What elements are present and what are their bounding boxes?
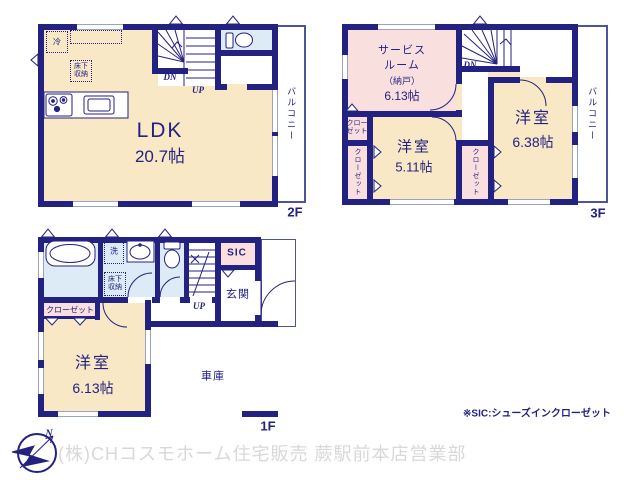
label-room-a-size: 5.11帖 xyxy=(395,161,432,176)
window xyxy=(378,24,435,30)
label-dn-3f: DN xyxy=(464,60,477,70)
wall xyxy=(342,111,462,117)
wall xyxy=(221,265,255,270)
wall xyxy=(255,237,261,281)
hall-2f xyxy=(221,56,272,84)
wall xyxy=(456,140,462,205)
wall xyxy=(152,24,158,74)
window xyxy=(390,199,454,205)
label-fridge: 冷 xyxy=(53,37,61,46)
pantry-space xyxy=(70,30,122,44)
label-sic: SIC xyxy=(227,247,247,259)
label-service2: ルーム xyxy=(384,60,420,73)
wall xyxy=(155,237,160,300)
wall xyxy=(215,84,227,90)
label-garage: 車庫 xyxy=(201,371,225,384)
window xyxy=(272,136,278,176)
label-underfloor-1f: 床下収納 xyxy=(107,276,123,292)
label-dn-2f: DN xyxy=(164,72,177,82)
wall xyxy=(456,111,462,117)
label-up-2f: UP xyxy=(192,85,204,95)
label-floor2: 2F xyxy=(287,206,302,221)
window xyxy=(272,90,278,132)
label-floor1: 1F xyxy=(260,420,275,435)
window xyxy=(38,252,44,278)
label-service-size: 6.13帖 xyxy=(384,90,419,104)
window xyxy=(192,201,240,207)
label-service1: サービス xyxy=(378,45,426,58)
stairwell-3f xyxy=(462,30,572,66)
window xyxy=(342,55,348,79)
label-closet-c: クローゼット xyxy=(471,148,479,196)
label-balcony-2f: バルコニー xyxy=(286,87,296,142)
window xyxy=(38,368,44,394)
label-underfloor-2f: 床下収納 xyxy=(73,63,89,79)
wall xyxy=(215,237,221,327)
wall xyxy=(546,77,578,83)
wall xyxy=(488,77,494,199)
label-balcony-3f: バルコニー xyxy=(587,87,597,142)
wall xyxy=(38,237,261,243)
wall xyxy=(215,24,221,90)
label-room-a: 洋室 xyxy=(397,138,431,155)
stairs-1f-icon xyxy=(189,250,215,296)
window xyxy=(572,145,578,178)
compass-n-label: N xyxy=(45,428,52,440)
label-room-b: 洋室 xyxy=(515,110,551,128)
wall xyxy=(494,77,520,83)
sic-note: ※SIC:シューズインクローゼット xyxy=(463,408,611,420)
floorplan-canvas: LDK 20.7帖 冷 床下収納 DN UP バルコニー 2F xyxy=(0,0,640,480)
wall xyxy=(247,84,272,90)
label-floor3: 3F xyxy=(590,207,605,222)
wall xyxy=(184,237,189,300)
label-room-1f-size: 6.13帖 xyxy=(72,380,113,396)
label-ldk-size: 20.7帖 xyxy=(135,147,185,167)
label-service3: （納戸） xyxy=(384,76,420,86)
window xyxy=(73,201,118,207)
watermark: (株)CHコスモホーム住宅販売 蕨駅前本店営業部 xyxy=(58,440,466,466)
toilet-room-2f xyxy=(221,30,272,50)
window xyxy=(58,411,98,417)
label-up-1f: UP xyxy=(193,301,205,311)
wall xyxy=(242,411,278,417)
label-closet-b: クローゼット xyxy=(353,148,361,196)
wall xyxy=(255,315,261,327)
window xyxy=(38,332,44,360)
wall xyxy=(456,24,462,84)
wall xyxy=(456,140,494,146)
label-washer: 洗 xyxy=(110,246,118,255)
label-room-1f: 洋室 xyxy=(75,355,111,373)
label-closet-1f: クローゼット xyxy=(46,305,94,314)
label-room-b-size: 6.38帖 xyxy=(512,134,553,150)
wall xyxy=(44,316,97,319)
wall xyxy=(215,50,272,56)
porch-1f xyxy=(261,239,296,327)
window xyxy=(145,330,151,364)
corridor-3f xyxy=(462,72,488,140)
label-closet-a: クローゼット xyxy=(346,120,368,136)
label-ldk: LDK xyxy=(137,119,184,143)
door-gap xyxy=(160,297,180,303)
window xyxy=(508,199,550,205)
toilet-room-1f xyxy=(160,243,184,297)
window xyxy=(572,106,578,132)
wall xyxy=(38,24,44,207)
bathroom-1f xyxy=(44,243,98,297)
hall-3f xyxy=(520,66,572,77)
label-entrance: 玄関 xyxy=(226,289,250,302)
wall xyxy=(98,237,103,300)
